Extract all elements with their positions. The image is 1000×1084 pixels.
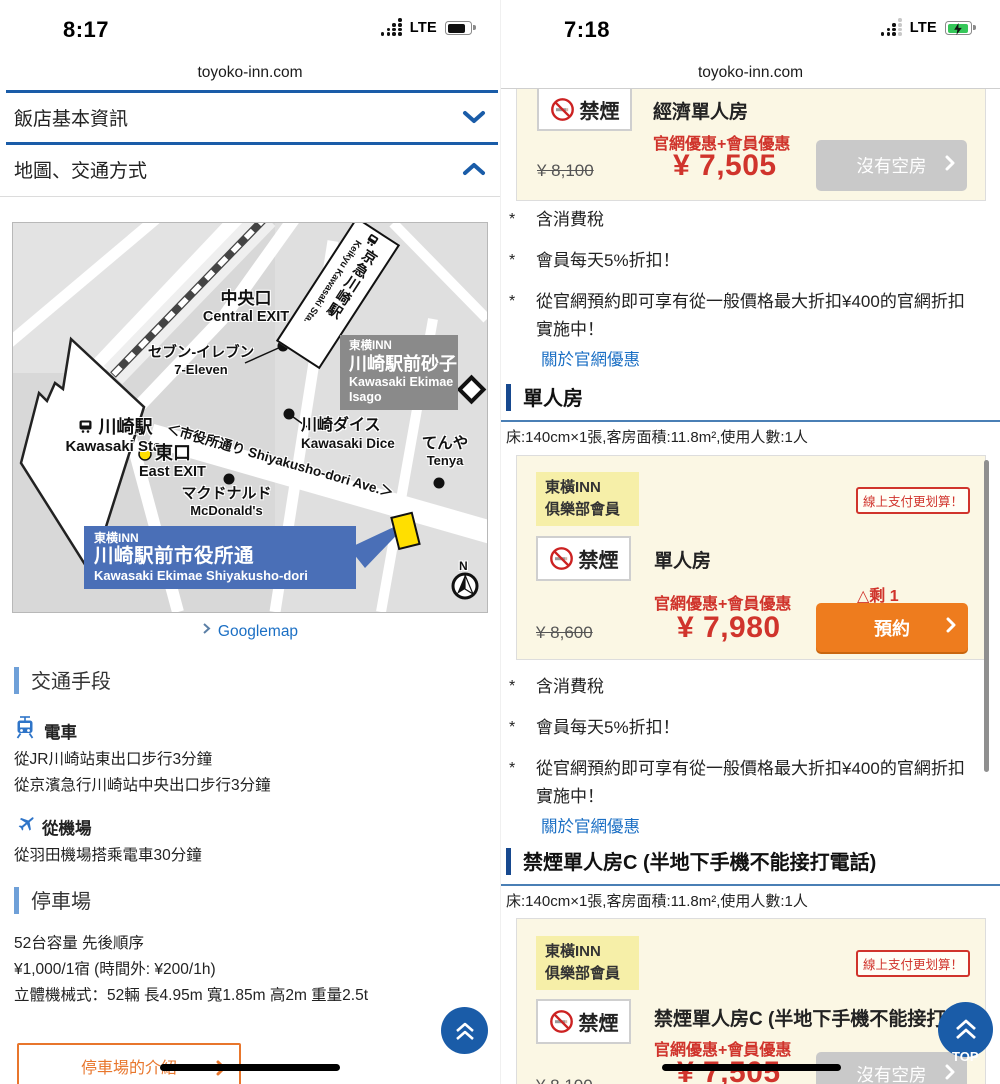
section-bar [506,848,511,875]
old-price: ¥ 8,100 [537,161,594,181]
divider [501,420,1000,422]
section-bar [506,384,511,411]
member-badge: 東橫INN 俱樂部會員 [536,936,639,990]
map-label-seven-eleven: セブン-イレブン 7-Eleven [131,345,271,377]
note-item: *從官網預約即可享有從一般價格最大折扣¥400的官網折扣實施中！ [506,288,990,344]
status-time: 7:18 [564,17,610,43]
no-smoking-badge: 禁煙 [537,89,632,131]
double-chevron-up-icon [952,1017,980,1042]
section-bar [14,887,19,914]
no-smoking-badge: 禁煙 [536,999,631,1044]
status-icons: LTE [381,20,472,36]
no-smoking-icon [550,97,575,122]
note-item: *從官網預約即可享有從一般價格最大折扣¥400的官網折扣實施中！ [506,755,990,811]
accordion-hotel-info[interactable]: 飯店基本資訊 [0,93,500,142]
section-bar [14,667,19,694]
room-spec: 床:140cm×1張,客房面積:11.8m²,使用人數:1人 [506,890,808,911]
accordion-label: 地圖、交通方式 [14,156,147,183]
parking-section-title: 停車場 [31,885,91,914]
price: ¥ 7,980 [677,611,781,645]
back-to-top-button[interactable] [441,1007,488,1054]
train-access-line: 從京濱急行川崎站中央出口步行3分鐘 [14,773,271,795]
no-smoking-label: 禁煙 [579,544,619,573]
battery-charging-icon [945,21,972,35]
no-smoking-icon [549,1009,574,1034]
chevron-down-icon [462,110,486,129]
no-vacancy-button[interactable]: 沒有空房 [816,140,967,191]
status-time: 8:17 [63,17,109,43]
compass-north-label: N [459,559,468,573]
reserve-label: 預約 [874,615,910,641]
accordion-label: 飯店基本資訊 [14,104,128,131]
no-vacancy-label: 沒有空房 [857,1062,927,1084]
chevron-right-icon [946,617,956,638]
parking-detail-line: 立體機械式：52輛 長4.95m 寬1.85m 高2m 重量2.5t [14,983,368,1005]
map-callout-hotel: 東横INN 川崎駅前市役所通 Kawasaki Ekimae Shiyakush… [84,526,356,589]
about-official-discount-link[interactable]: 關於官網優惠 [541,346,640,370]
price: ¥ 7,505 [673,149,777,183]
member-badge: 東橫INN 俱樂部會員 [536,472,639,526]
airport-subheading: 從機場 [42,815,92,839]
no-smoking-label: 禁煙 [580,95,620,124]
map-label-kawasaki-dice: 川崎ダイス Kawasaki Dice [301,417,421,452]
chevron-right-icon [945,155,955,176]
home-indicator [160,1064,340,1071]
home-indicator [662,1064,841,1071]
tram-icon [14,715,36,744]
price-notes: *含消費稅 *會員每天5%折扣！ *從官網預約即可享有從一般價格最大折扣¥400… [506,206,990,357]
chevron-right-icon [202,622,211,639]
price-notes: *含消費稅 *會員每天5%折扣！ *從官網預約即可享有從一般價格最大折扣¥400… [506,673,990,824]
online-payment-badge: 線上支付更划算！ [856,487,970,514]
old-price: ¥ 8,600 [536,623,593,643]
double-chevron-up-icon [453,1020,477,1042]
no-smoking-icon [549,546,574,571]
parking-detail-line: ¥1,000/1宿 (時間外: ¥200/1h) [14,957,216,979]
note-item: *會員每天5%折扣！ [506,714,990,742]
room-name: 經濟單人房 [653,97,748,124]
signal-icon [881,20,902,36]
train-subheading: 電車 [44,719,77,743]
note-item: *含消費稅 [506,673,990,701]
access-map: 中央口 Central EXIT セブン-イレブン 7-Eleven Keiky… [12,222,488,613]
scrollbar[interactable] [984,460,989,772]
no-smoking-badge: 禁煙 [536,536,631,581]
section-title-nonsmoking-single-c: 禁煙單人房C (半地下手機不能接打電話) [523,846,876,875]
note-item: *含消費稅 [506,206,990,234]
googlemap-link[interactable]: Googlemap [0,622,500,641]
about-official-discount-link[interactable]: 關於官網優惠 [541,813,640,837]
browser-url[interactable]: toyoko-inn.com [0,64,500,82]
no-smoking-label: 禁煙 [579,1007,619,1036]
train-icon [78,420,93,433]
browser-url[interactable]: toyoko-inn.com [501,64,1000,82]
chevron-right-icon [945,1064,955,1084]
network-label: LTE [910,20,937,36]
online-payment-badge: 線上支付更划算！ [856,950,970,977]
room-name: 單人房 [654,546,711,573]
parking-detail-line: 52台容量 先後順序 [14,931,144,953]
accordion-map-access[interactable]: 地圖、交通方式 [0,145,500,194]
divider [501,884,1000,886]
network-label: LTE [410,20,437,36]
divider [0,196,500,197]
map-label-tenya: てんや Tenya [411,435,479,469]
no-vacancy-label: 沒有空房 [857,153,927,178]
map-label-mcdonalds: マクドナルド McDonald's [169,485,284,518]
chevron-up-icon [462,162,486,181]
back-to-top-label: TOP [952,1049,979,1064]
battery-icon [445,21,472,35]
note-item: *會員每天5%折扣！ [506,247,990,275]
status-icons: LTE [881,20,972,36]
reserve-button[interactable]: 預約 [816,603,968,652]
airport-access-line: 從羽田機場搭乘電車30分鐘 [14,843,202,865]
room-spec: 床:140cm×1張,客房面積:11.8m²,使用人數:1人 [506,426,808,447]
right-phone-screenshot: 7:18 LTE toyoko-inn.com 禁煙 經濟單人房 官網優惠+會員… [500,0,1000,1084]
left-phone-screenshot: 8:17 LTE toyoko-inn.com 飯店基本資訊 地圖、交通方式 [0,0,500,1084]
old-price: ¥ 8,100 [536,1076,593,1084]
train-access-line: 從JR川崎站東出口步行3分鐘 [14,747,212,769]
transport-section-title: 交通手段 [31,665,111,694]
section-title-single-room: 單人房 [523,382,583,411]
signal-icon [381,20,402,36]
airplane-icon [12,812,38,841]
map-label-toyoko-inn-isago: 東横INN 川崎駅前砂子 Kawasaki Ekimae Isago [340,335,458,410]
